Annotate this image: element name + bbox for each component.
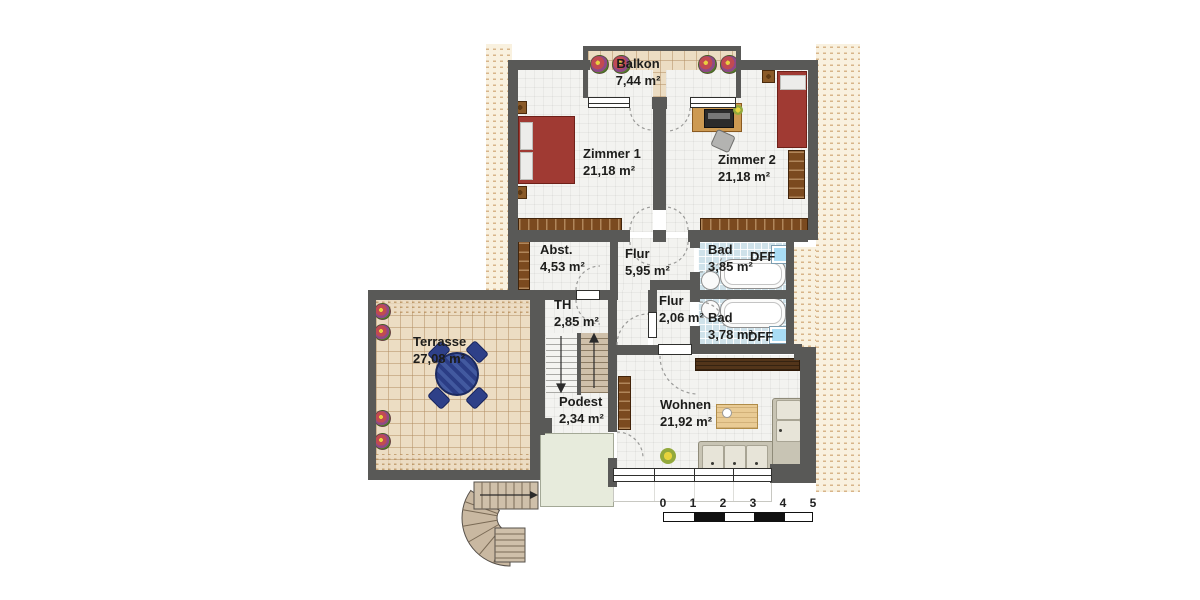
flower-pot [698,55,717,74]
potted-plant [660,448,676,464]
window-mullion [691,103,735,104]
room-name: Balkon [578,56,698,73]
room-label-bad-oben: Bad 3,85 m² [708,242,753,275]
wall [770,464,816,483]
sofa-cushion [724,445,746,470]
wall [508,60,518,300]
wall [530,435,540,480]
shelf [788,150,805,199]
cushion-button [755,462,758,465]
cushion-button [733,462,736,465]
window-divider [654,469,655,481]
wall [690,238,700,248]
sill-divider [733,482,734,501]
cushion-button [711,462,714,465]
cabinet [618,376,631,430]
room-label-wohnen: Wohnen 21,92 m² [660,397,712,430]
stair-divider-wall [577,333,581,395]
wall [610,238,618,290]
flower-pot [374,433,391,450]
room-name: Terrasse [413,334,466,351]
room-label-flur-2: Flur 2,06 m² [659,293,704,326]
staircase-down-flight [546,333,577,393]
room-area: 2,34 m² [559,411,604,428]
wall [736,51,741,98]
lower-roof-area [540,433,614,507]
room-area: 4,53 m² [540,259,585,276]
wall [368,470,532,480]
skylight-label: DFF [750,249,775,266]
wall [648,290,657,312]
window-mullion [614,475,771,476]
flower-pot [374,303,391,320]
window-divider [733,469,734,481]
wall [368,290,376,480]
room-area: 27,08 m² [413,351,466,368]
room-label-bad-unten: Bad 3,78 m² [708,310,753,343]
balcony-window-right [690,97,736,108]
room-area: 2,06 m² [659,310,704,327]
room-area: 7,44 m² [578,73,698,90]
living-room-door-threshold [658,344,692,355]
wall [808,60,818,240]
window-mullion [589,103,629,104]
scale-tick: 5 [810,497,817,509]
spiral-staircase [450,466,546,572]
scale-segment [754,513,784,521]
sofa-cushion [702,445,724,470]
laptop [704,109,734,128]
room-label-flur: Flur 5,95 m² [625,246,670,279]
sideboard-shelf [695,358,800,371]
scale-segment [724,513,754,521]
roof-hatch-right [816,44,860,492]
room-label-zimmer1: Zimmer 1 21,18 m² [583,146,641,179]
sofa-chaise [776,400,801,420]
room-area: 3,78 m² [708,327,753,344]
room-name: Bad [708,310,753,327]
room-name: Bad [708,242,753,259]
scale-tick: 2 [720,497,727,509]
room-label-treppenhaus: TH 2,85 m² [554,297,599,330]
room-label-terrasse: Terrasse 27,08 m² [413,334,466,367]
pillow [780,75,806,90]
nightstand [762,70,775,83]
scale-segment [664,513,694,521]
scale-tick: 4 [780,497,787,509]
room-name: Abst. [540,242,585,259]
scale-tick: 3 [750,497,757,509]
laptop-screen [708,113,730,119]
wall [530,290,545,435]
room-label-podest: Podest 2,34 m² [559,394,604,427]
pillow [520,122,533,150]
wall [653,97,666,210]
coffee-table [716,404,758,429]
scale-bar [663,512,813,522]
cushion-button [779,429,782,432]
room-name: TH [554,297,599,314]
wall [800,347,816,483]
wall [690,344,802,354]
scale-segment [784,513,812,521]
scale-segment [694,513,724,521]
storage-shelf [518,240,530,290]
balcony-railing [583,46,741,51]
floor-plan: Balkon 7,44 m² Zimmer 1 21,18 m² Zimmer … [0,0,1200,600]
scale-tick: 1 [690,497,697,509]
sill-divider [654,482,655,501]
room-area: 2,85 m² [554,314,599,331]
wall [786,238,794,354]
room-area: 3,85 m² [708,259,753,276]
room-name: Flur [659,293,704,310]
living-room-window [613,468,772,482]
wall [608,345,617,432]
terrace-roof-band-top [376,300,530,313]
hall-door-threshold [648,312,657,338]
room-label-balkon: Balkon 7,44 m² [578,56,698,89]
room-name: Wohnen [660,397,712,414]
window-divider [694,469,695,481]
skylight-label: DFF [748,329,773,346]
wall [368,290,545,300]
balcony-window-left [588,97,630,108]
room-label-abstellraum: Abst. 4,53 m² [540,242,585,275]
room-area: 5,95 m² [625,263,670,280]
wall [736,60,818,70]
room-label-zimmer2: Zimmer 2 21,18 m² [718,152,776,185]
sofa-cushion [746,445,768,470]
room-name: Podest [559,394,604,411]
wall [538,418,552,433]
room-name: Zimmer 2 [718,152,776,169]
room-area: 21,18 m² [583,163,641,180]
room-flur-annex [613,290,648,347]
flower-pot [374,324,391,341]
wall [653,230,666,242]
pillow [520,152,533,180]
wall [698,290,786,299]
room-name: Flur [625,246,670,263]
staircase-up-flight [581,333,608,393]
roof-hatch-right-ext [794,247,816,347]
room-name: Zimmer 1 [583,146,641,163]
wall [650,280,697,290]
scale-tick: 0 [660,497,667,509]
flower-pot [374,410,391,427]
room-area: 21,92 m² [660,414,712,431]
table-decor [722,408,732,418]
room-area: 21,18 m² [718,169,776,186]
wall [608,290,617,345]
